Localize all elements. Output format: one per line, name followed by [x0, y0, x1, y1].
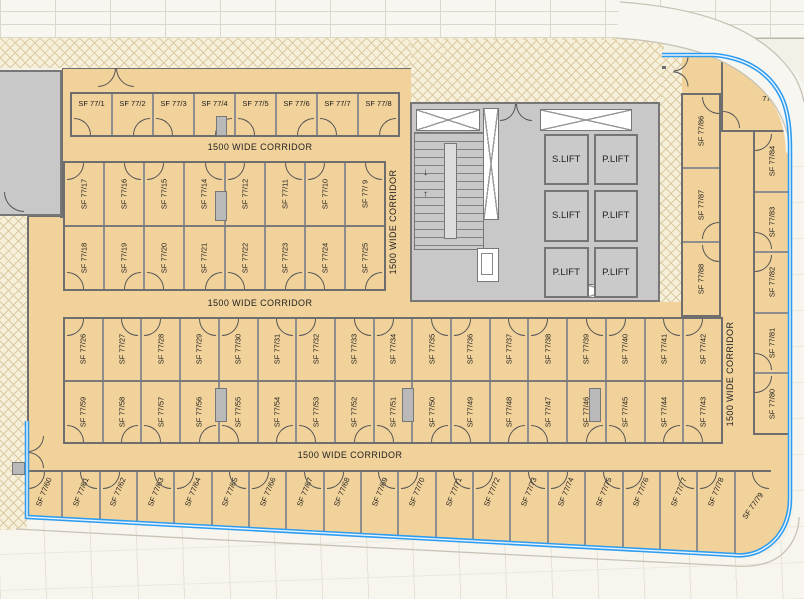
- room-sf-77-19: SF 77/19: [105, 227, 145, 289]
- room-sf-77-38: SF 77/38: [529, 319, 568, 380]
- door-arc: [702, 97, 719, 114]
- vent-shaft: [540, 109, 632, 131]
- room-sf-77-16: SF 77/16: [105, 163, 145, 225]
- door-arc: [531, 425, 548, 442]
- pillar: [215, 388, 227, 422]
- room-sf-77-33: SF 77/33: [336, 319, 375, 380]
- door-arc: [702, 222, 719, 239]
- stair-up-arrow-icon: ↑: [423, 189, 428, 200]
- room-sf-77-31: SF 77/31: [259, 319, 298, 380]
- door-arc: [67, 425, 84, 442]
- room-sf-77-83: SF 77/83: [755, 193, 789, 254]
- room-sf-77-36: SF 77/36: [452, 319, 491, 380]
- room-sf-77-88: SF 77/88: [683, 243, 719, 315]
- building-outline: SF 77/1 SF 77/2 SF 77/3 SF 77/4 SF 77/5 …: [0, 0, 804, 599]
- room-sf-77-43: SF 77/43: [684, 382, 721, 443]
- lift-s-lift: S.LIFT: [544, 190, 589, 241]
- door-arc: [67, 272, 84, 289]
- door-arc: [276, 425, 293, 442]
- room-sf-77-11: SF 77/11: [266, 163, 306, 225]
- door-arc: [4, 192, 24, 212]
- door-arc: [124, 163, 141, 180]
- room-sf-77-54: SF 77/54: [259, 382, 298, 443]
- room-sf-77-30: SF 77/30: [220, 319, 259, 380]
- room-sf-77-10: SF 77/10: [306, 163, 346, 225]
- door-arc: [228, 272, 245, 289]
- room-sf-77-21: SF 77/21: [185, 227, 225, 289]
- staircase: ↓ ↑: [414, 132, 484, 250]
- corridor-label-top: 1500 WIDE CORRIDOR: [160, 142, 360, 152]
- door-arc: [121, 425, 138, 442]
- lift-p-lift: P.LIFT: [544, 247, 589, 298]
- room-sf-77-12: SF 77/12: [226, 163, 266, 225]
- door-arc: [377, 425, 394, 442]
- pillar: [215, 191, 227, 221]
- pillar: [402, 388, 414, 422]
- corridor-label-bottom: 1500 WIDE CORRIDOR: [250, 450, 450, 460]
- stair-down-arrow-icon: ↓: [423, 167, 428, 178]
- room-sf-77-28: SF 77/28: [142, 319, 181, 380]
- service-core: ↓ ↑ S.LIFTP.LIFTS.LIFTP.LIFTP.LIFTP.LIFT: [410, 102, 660, 302]
- door-arc: [124, 272, 141, 289]
- door-arc: [67, 163, 84, 180]
- room-sf-77-82: SF 77/82: [755, 253, 789, 314]
- hatch-strip-right: [660, 54, 682, 302]
- room-sf-77-78: SF 77/78: [698, 472, 735, 558]
- door-arc: [156, 118, 173, 135]
- door-arc: [297, 118, 314, 135]
- lift-p-lift: P.LIFT: [594, 134, 639, 185]
- door-arc: [723, 111, 740, 128]
- room-sf-77-39: SF 77/39: [568, 319, 607, 380]
- room-sf-77-47: SF 77/47: [529, 382, 568, 443]
- room-label: 77/85: [762, 94, 781, 104]
- room-sf-77-6: SF 77/6: [277, 94, 318, 135]
- vent-shaft: [416, 109, 480, 131]
- shop-block-c: SF 77/26 SF 77/27 SF 77/28 SF 77/29 SF 7…: [63, 317, 723, 444]
- door-arc: [308, 272, 325, 289]
- room-sf-77-5: SF 77/5: [236, 94, 277, 135]
- room-sf-77-2: SF 77/2: [113, 94, 154, 135]
- block-c-upper-row: SF 77/26 SF 77/27 SF 77/28 SF 77/29 SF 7…: [65, 319, 721, 382]
- room-sf-77-57: SF 77/57: [142, 382, 181, 443]
- door-arc: [586, 425, 603, 442]
- vent-shaft-vertical: [483, 108, 499, 220]
- room-sf-77-18: SF 77/18: [65, 227, 105, 289]
- room-sf-77-59: SF 77/59: [65, 382, 104, 443]
- room-sf-77-22: SF 77/22: [226, 227, 266, 289]
- room-sf-77-44: SF 77/44: [646, 382, 685, 443]
- external-annex: [0, 70, 62, 216]
- door-arc: [133, 118, 150, 135]
- room-label: SF: [762, 84, 781, 94]
- door-arc: [702, 245, 719, 262]
- room-sf-77-76: SF 77/76: [624, 472, 661, 558]
- corridor-label-middle: 1500 WIDE CORRIDOR: [160, 298, 360, 308]
- room-sf-77-1: SF 77/1: [72, 94, 113, 135]
- pillar: [589, 388, 601, 422]
- room-sf-77-80: SF 77/80: [755, 374, 789, 433]
- room-sf-77-53: SF 77/53: [297, 382, 336, 443]
- boundary-post: [12, 462, 25, 475]
- lift-bank: S.LIFTP.LIFTS.LIFTP.LIFTP.LIFTP.LIFT: [544, 134, 638, 298]
- wing-inner-rooms: SF 77/86 SF 77/87 SF 77/88: [681, 93, 721, 317]
- room-sf-77-35: SF 77/35: [413, 319, 452, 380]
- room-sf-77-32: SF 77/32: [297, 319, 336, 380]
- lift-s-lift: S.LIFT: [544, 134, 589, 185]
- room-sf-77-27: SF 77/27: [104, 319, 143, 380]
- door-arc: [285, 272, 302, 289]
- room-sf-77-75: SF 77/75: [586, 472, 623, 558]
- door-arc: [752, 472, 769, 489]
- stair-landing: [444, 143, 457, 239]
- room-sf-77-48: SF 77/48: [491, 382, 530, 443]
- door-arc: [320, 118, 337, 135]
- door-arc: [379, 118, 396, 135]
- room-sf-77-25: SF 77/25: [346, 227, 384, 289]
- room-sf-77-52: SF 77/52: [336, 382, 375, 443]
- door-arc: [354, 425, 371, 442]
- room-sf-77-15: SF 77/15: [145, 163, 185, 225]
- floor-plan-canvas: SF 77/1 SF 77/2 SF 77/3 SF 77/4 SF 77/5 …: [0, 0, 804, 599]
- room-sf-77-50: SF 77/50: [413, 382, 452, 443]
- room-sf-77-34: SF 77/34: [375, 319, 414, 380]
- room-sf-77-8: SF 77/8: [359, 94, 398, 135]
- room-sf-77-9: SF 77/ 9: [346, 163, 384, 225]
- room-sf-77-3: SF 77/3: [154, 94, 195, 135]
- wing-outer-rooms: SF 77/84 SF 77/83 SF 77/82 SF 77/81 SF 7…: [753, 130, 791, 435]
- room-sf-77-23: SF 77/23: [266, 227, 306, 289]
- room-sf-77-17: SF 77/17: [65, 163, 105, 225]
- pillar: [216, 116, 227, 136]
- door-arc: [205, 272, 222, 289]
- room-sf-77-26: SF 77/26: [65, 319, 104, 380]
- room-sf-77-49: SF 77/49: [452, 382, 491, 443]
- door-arc: [285, 163, 302, 180]
- door-arc: [205, 163, 222, 180]
- room-sf-77-87: SF 77/87: [683, 169, 719, 243]
- door-arc: [222, 425, 239, 442]
- door-arc: [74, 118, 91, 135]
- shop-block-a: SF 77/1 SF 77/2 SF 77/3 SF 77/4 SF 77/5 …: [70, 92, 400, 137]
- door-arc: [238, 118, 255, 135]
- room-sf-77-7: SF 77/7: [318, 94, 359, 135]
- door-arc: [609, 425, 626, 442]
- room-sf-77-24: SF 77/24: [306, 227, 346, 289]
- room-sf-77-41: SF 77/41: [646, 319, 685, 380]
- sidewalk-tile-band: [0, 0, 804, 39]
- door-arc: [144, 425, 161, 442]
- block-b-lower-row: SF 77/18 SF 77/19 SF 77/20 SF 77/21 SF 7…: [65, 227, 384, 289]
- door-arc: [147, 272, 164, 289]
- door-arc: [663, 425, 680, 442]
- shop-block-b: SF 77/17 SF 77/16 SF 77/15 SF 77/14 SF 7…: [63, 161, 386, 291]
- lift-p-lift: P.LIFT: [594, 247, 639, 298]
- room-sf-77-37: SF 77/37: [491, 319, 530, 380]
- room-sf-77-81: SF 77/81: [755, 314, 789, 375]
- door-arc: [147, 163, 164, 180]
- room-sf-77-86: SF 77/86: [683, 95, 719, 169]
- room-sf-77-85: SF 77/85: [721, 56, 791, 132]
- room-sf-77-40: SF 77/40: [607, 319, 646, 380]
- lift-p-lift: P.LIFT: [594, 190, 639, 241]
- room-sf-77-77: SF 77/77: [661, 472, 698, 558]
- door-arc: [299, 425, 316, 442]
- room-sf-77-29: SF 77/29: [181, 319, 220, 380]
- room-sf-77-56: SF 77/56: [181, 382, 220, 443]
- room-sf-77-84: SF 77/84: [755, 132, 789, 193]
- corridor-label-vertical-core: 1500 WIDE CORRIDOR: [388, 147, 398, 297]
- door-arc: [365, 272, 382, 289]
- hatch-strip-left: [0, 216, 27, 530]
- door-arc: [431, 425, 448, 442]
- lift-car: [481, 253, 493, 275]
- room-sf-77-45: SF 77/45: [607, 382, 646, 443]
- room-sf-77-46: SF 77/46: [568, 382, 607, 443]
- block-c-lower-row: SF 77/59 SF 77/58 SF 77/57 SF 77/56 SF 7…: [65, 382, 721, 443]
- corridor-label-vertical-wing: 1500 WIDE CORRIDOR: [725, 299, 735, 449]
- door-arc: [454, 425, 471, 442]
- room-sf-77-79: SF 77/79: [736, 472, 771, 558]
- room-sf-77-20: SF 77/20: [145, 227, 185, 289]
- door-arc: [365, 163, 382, 180]
- door-arc: [508, 425, 525, 442]
- door-arc: [199, 425, 216, 442]
- room-sf-77-58: SF 77/58: [104, 382, 143, 443]
- room-sf-77-42: SF 77/42: [684, 319, 721, 380]
- door-arc: [686, 425, 703, 442]
- service-lift-shaft: [477, 248, 499, 282]
- hatch-band-above-core: [411, 40, 662, 104]
- door-arc: [228, 163, 245, 180]
- door-arc: [308, 163, 325, 180]
